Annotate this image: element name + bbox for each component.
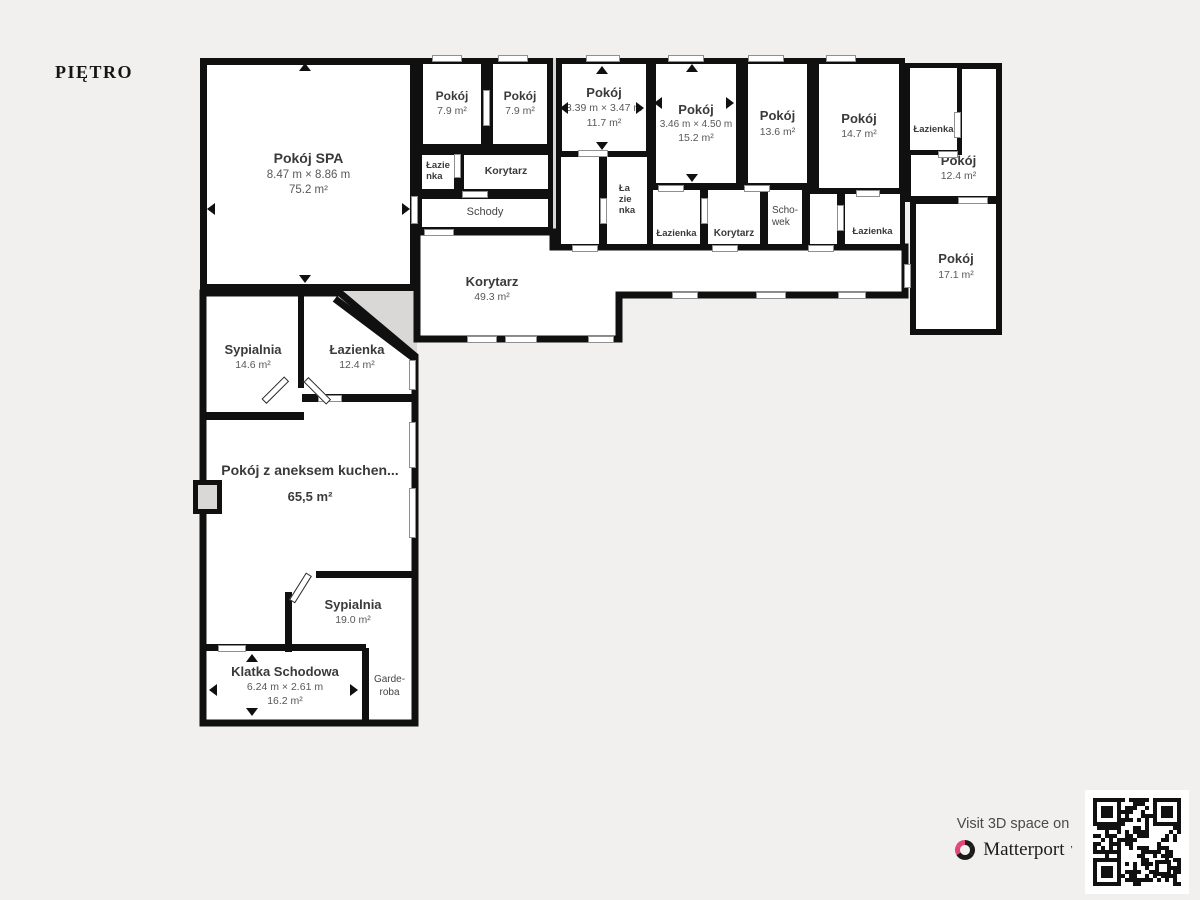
door bbox=[958, 197, 988, 204]
window bbox=[505, 336, 537, 343]
arrow-right-icon bbox=[402, 203, 410, 215]
room-label: Korytarz bbox=[438, 274, 546, 290]
room-lazienka-top-left: Łazie nka bbox=[417, 150, 459, 194]
room-label: Garde- roba bbox=[366, 674, 413, 699]
room-korytarz-top: Korytarz bbox=[459, 150, 553, 194]
arrow-down-icon bbox=[246, 708, 258, 716]
room-label: Pokój bbox=[566, 85, 642, 101]
room-label: Pokój bbox=[760, 108, 796, 124]
room-label: Korytarz bbox=[485, 165, 528, 178]
room-label: Sypialnia bbox=[206, 342, 300, 358]
room-label: Pokój SPA bbox=[267, 150, 350, 168]
room-sypialnia-146: Sypialnia 14.6 m² bbox=[206, 342, 300, 372]
room-label: Łazienka bbox=[913, 125, 953, 136]
room-sypialnia-190: Sypialnia 19.0 m² bbox=[294, 597, 412, 627]
window bbox=[498, 55, 528, 62]
room-pokoj-152: Pokój 3.46 m × 4.50 m 15.2 m² bbox=[650, 58, 742, 189]
matterport-logo-icon bbox=[953, 838, 977, 862]
qr-code bbox=[1085, 790, 1189, 894]
room-label: Schody bbox=[467, 206, 504, 220]
room-label: Ła zie nka bbox=[619, 184, 635, 217]
room-pokoj-79a: Pokój 7.9 m² bbox=[417, 58, 487, 150]
vestibule bbox=[556, 152, 604, 249]
room-area: 15.2 m² bbox=[660, 131, 733, 145]
door bbox=[578, 150, 608, 157]
door bbox=[658, 185, 684, 192]
room-pokoj-spa: Pokój SPA 8.47 m × 8.86 m 75.2 m² bbox=[200, 58, 417, 291]
room-label: Pokój bbox=[436, 89, 469, 104]
room-pokoj-147: Pokój 14.7 m² bbox=[813, 58, 905, 194]
arrow-down-icon bbox=[686, 174, 698, 182]
door bbox=[904, 264, 911, 288]
window bbox=[588, 336, 614, 343]
room-area: 7.9 m² bbox=[504, 104, 537, 118]
window bbox=[668, 55, 704, 62]
window bbox=[586, 55, 620, 62]
arrow-down-icon bbox=[299, 275, 311, 283]
room-korytarz-main: Korytarz 49.3 m² bbox=[438, 274, 546, 304]
door bbox=[483, 90, 490, 126]
room-area: 14.7 m² bbox=[841, 127, 877, 141]
floor-title: PIĘTRO bbox=[55, 62, 133, 83]
window bbox=[748, 55, 784, 62]
window bbox=[409, 422, 416, 468]
room-pokoj-136: Pokój 13.6 m² bbox=[742, 58, 813, 189]
door bbox=[411, 196, 418, 224]
room-area: 12.4 m² bbox=[303, 358, 411, 372]
room-label: Pokój bbox=[660, 102, 733, 118]
qr-code-pattern bbox=[1093, 798, 1181, 886]
room-lazienka-mid: Ła zie nka bbox=[602, 152, 652, 249]
room-area: 13.6 m² bbox=[760, 125, 796, 139]
matterport-wordmark: Matterport bbox=[983, 839, 1064, 861]
room-schody: Schody bbox=[417, 194, 553, 232]
door bbox=[701, 198, 708, 224]
door bbox=[454, 154, 461, 178]
room-dims: 6.24 m × 2.61 m bbox=[211, 680, 359, 694]
wall bbox=[206, 412, 304, 420]
room-pokoj-aneks: Pokój z aneksem kuchen... 65,5 m² bbox=[210, 462, 410, 505]
room-area: 11.7 m² bbox=[566, 116, 642, 130]
room-label: Łazienka bbox=[656, 229, 696, 240]
room-label: Pokój bbox=[938, 251, 974, 267]
door bbox=[938, 151, 958, 158]
room-klatka-schodowa: Klatka Schodowa 6.24 m × 2.61 m 16.2 m² bbox=[211, 664, 359, 709]
wall bbox=[316, 571, 412, 578]
window bbox=[672, 292, 698, 299]
window bbox=[756, 292, 786, 299]
visit-3d-text: Visit 3D space on bbox=[938, 816, 1088, 832]
room-pokoj-171: Pokój 17.1 m² bbox=[910, 198, 1002, 335]
room-lazienka-top-right: Łazienka bbox=[905, 63, 962, 155]
door bbox=[462, 191, 488, 198]
matterport-footer: Visit 3D space on Matterport’ bbox=[938, 816, 1088, 862]
room-label: Łazienka bbox=[303, 342, 411, 358]
door bbox=[856, 190, 880, 197]
room-label: Łazienka bbox=[852, 227, 892, 238]
room-area: 17.1 m² bbox=[938, 268, 974, 282]
room-label: Korytarz bbox=[714, 228, 755, 241]
arrow-up-icon bbox=[299, 63, 311, 71]
arrow-down-icon bbox=[596, 142, 608, 150]
trademark-tick: ’ bbox=[1071, 845, 1073, 856]
door bbox=[837, 205, 844, 231]
arrow-right-icon bbox=[350, 684, 358, 696]
room-area: 75.2 m² bbox=[267, 183, 350, 199]
arrow-right-icon bbox=[636, 102, 644, 114]
arrow-left-icon bbox=[560, 102, 568, 114]
room-korytarz-mid: Korytarz bbox=[703, 185, 765, 249]
room-label: Łazie nka bbox=[426, 161, 450, 183]
window bbox=[467, 336, 497, 343]
door bbox=[744, 185, 770, 192]
door bbox=[808, 245, 834, 252]
arrow-left-icon bbox=[654, 97, 662, 109]
window bbox=[409, 360, 416, 390]
arrow-left-icon bbox=[207, 203, 215, 215]
window bbox=[826, 55, 856, 62]
floorplan-canvas: PIĘTRO Pokój SPA 8.47 m × 8.86 m 75.2 m²… bbox=[0, 0, 1200, 900]
arrow-left-icon bbox=[209, 684, 217, 696]
room-area: 12.4 m² bbox=[921, 169, 996, 183]
room-label: Klatka Schodowa bbox=[211, 664, 359, 680]
window bbox=[838, 292, 866, 299]
arrow-up-icon bbox=[596, 66, 608, 74]
arrow-right-icon bbox=[726, 97, 734, 109]
room-schowek: Scho- wek bbox=[763, 185, 807, 249]
room-lazienka-124: Łazienka 12.4 m² bbox=[303, 342, 411, 372]
door bbox=[218, 645, 246, 652]
room-label: Pokój z aneksem kuchen... bbox=[210, 462, 410, 480]
door bbox=[572, 245, 598, 252]
room-lazienka-147: Łazienka bbox=[840, 189, 905, 249]
door bbox=[600, 198, 607, 224]
room-dims: 3.46 m × 4.50 m bbox=[660, 118, 733, 132]
room-area: 19.0 m² bbox=[294, 613, 412, 627]
room-area: 14.6 m² bbox=[206, 358, 300, 372]
door bbox=[712, 245, 738, 252]
room-label: Pokój bbox=[504, 89, 537, 104]
room-label: Sypialnia bbox=[294, 597, 412, 613]
arrow-up-icon bbox=[686, 64, 698, 72]
room-area: 16.2 m² bbox=[211, 694, 359, 708]
room-dims: 8.47 m × 8.86 m bbox=[267, 168, 350, 184]
arrow-up-icon bbox=[246, 654, 258, 662]
door bbox=[424, 229, 454, 236]
window bbox=[409, 488, 416, 538]
room-label: Pokój bbox=[841, 111, 877, 127]
room-garderoba: Garde- roba bbox=[366, 674, 413, 699]
room-area: 7.9 m² bbox=[436, 104, 469, 118]
door bbox=[954, 112, 961, 138]
room-lazienka-152: Łazienka bbox=[648, 185, 705, 249]
room-area: 49.3 m² bbox=[438, 290, 546, 304]
room-pokoj-79b: Pokój 7.9 m² bbox=[487, 58, 553, 150]
room-label: Scho- wek bbox=[772, 205, 798, 230]
room-area: 65,5 m² bbox=[210, 488, 410, 506]
room-dims: 3.39 m × 3.47 m bbox=[566, 101, 642, 115]
window bbox=[432, 55, 462, 62]
room-label: Pokój bbox=[921, 153, 996, 169]
